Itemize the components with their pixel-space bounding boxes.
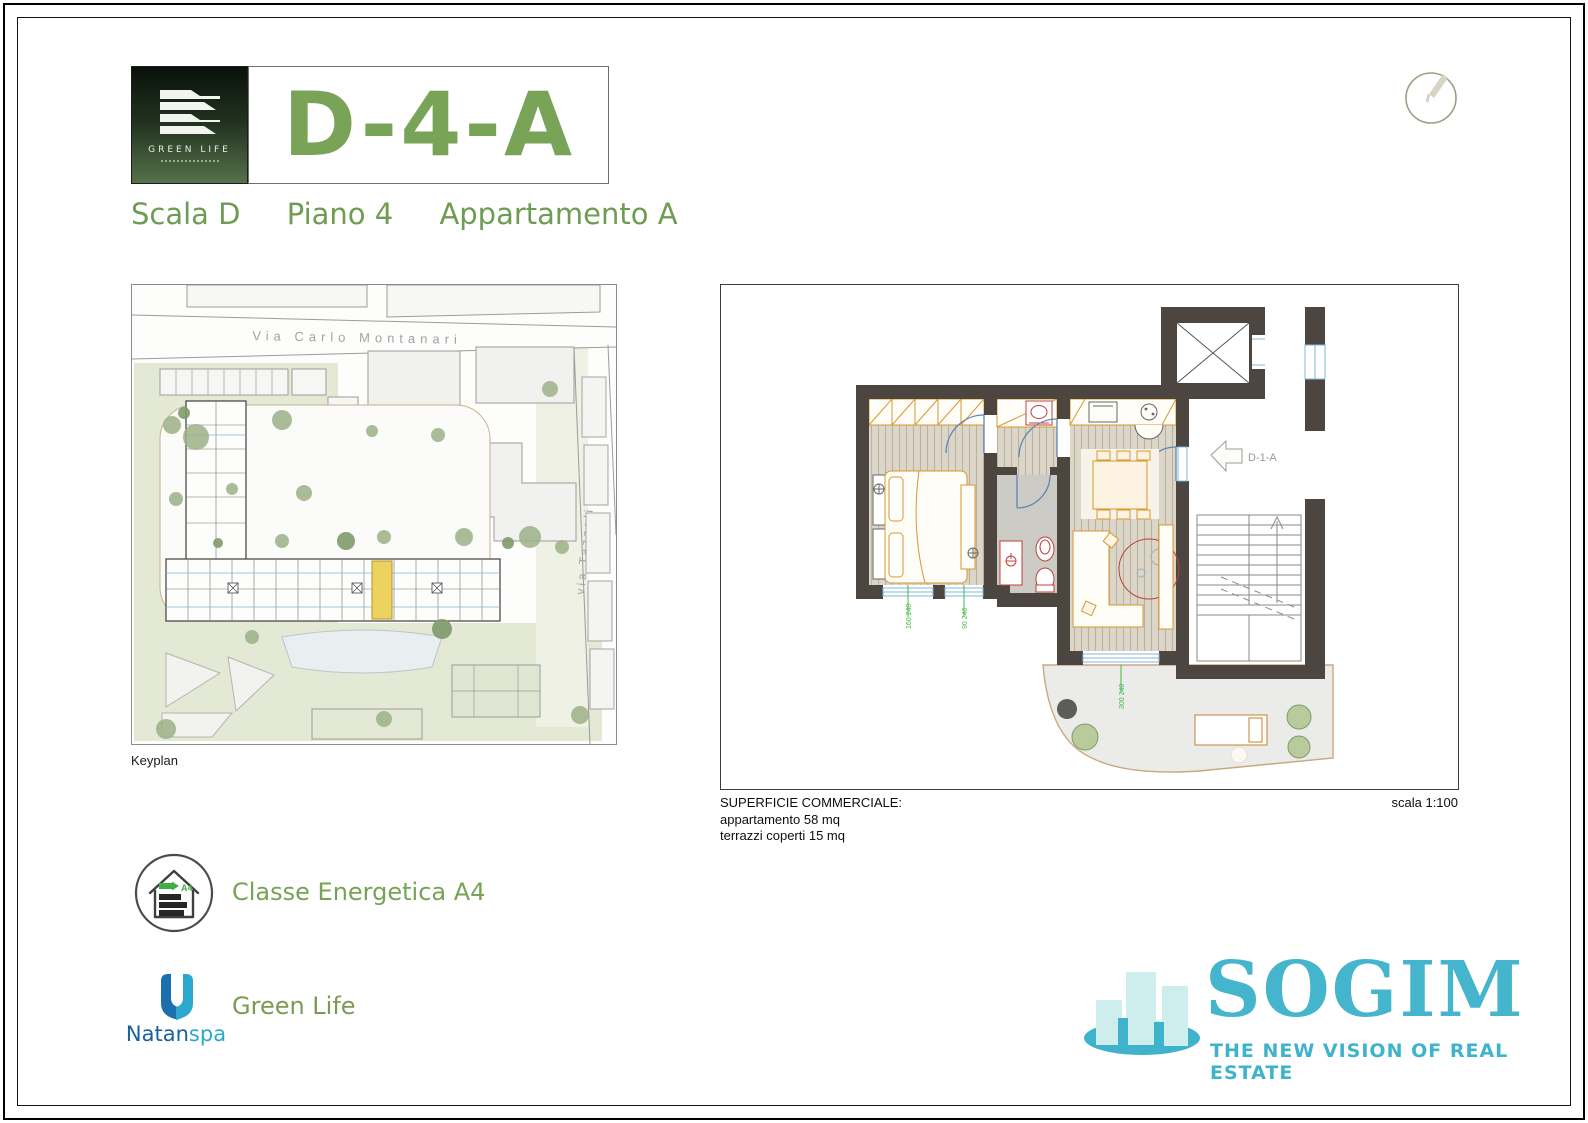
natan-name-part2: spa bbox=[189, 1022, 226, 1046]
terrace bbox=[1043, 665, 1333, 772]
unit-subtitle: Scala D Piano 4 Appartamento A bbox=[131, 197, 715, 231]
entry-marker: D-1-A bbox=[1211, 441, 1277, 471]
natan-name-part1: Natan bbox=[126, 1022, 189, 1046]
sogim-brand-name: SOGIM bbox=[1205, 952, 1525, 1029]
subtitle-scala: Scala D bbox=[131, 197, 241, 231]
terrace-table bbox=[1057, 699, 1077, 719]
terrace-lounge-chair bbox=[1195, 715, 1267, 745]
wardrobe bbox=[869, 399, 984, 425]
keyplan-map: Via Carlo Montanari via Tazzoli bbox=[132, 285, 616, 744]
subtitle-piano: Piano 4 bbox=[287, 197, 393, 231]
bed bbox=[873, 471, 967, 583]
terrace-plant bbox=[1288, 736, 1310, 758]
north-arrow-icon bbox=[1398, 66, 1464, 132]
terrace-plant bbox=[1287, 705, 1311, 729]
svg-text:90 240: 90 240 bbox=[962, 607, 969, 629]
terrace-plant bbox=[1072, 724, 1098, 750]
plan-sheet: GREEN LIFE D-4-A Scala D Piano 4 Apparta… bbox=[0, 0, 1588, 1123]
project-name: Green Life bbox=[232, 992, 356, 1020]
keyplan-highlighted-unit bbox=[372, 561, 392, 619]
floor-plan: D-1-A 160 240 90 240 300 240 bbox=[720, 284, 1459, 790]
tv-bench bbox=[1159, 525, 1173, 629]
svg-text:300 240: 300 240 bbox=[1119, 684, 1126, 709]
keyplan: Via Carlo Montanari via Tazzoli bbox=[131, 284, 617, 745]
unit-code-box: D-4-A bbox=[248, 66, 609, 184]
laundry-closet bbox=[997, 399, 1057, 427]
sogim-logo-icon bbox=[1080, 956, 1206, 1058]
svg-text:160 240: 160 240 bbox=[906, 604, 913, 629]
unit-code: D-4-A bbox=[283, 81, 575, 169]
floor-plan-drawing: D-1-A 160 240 90 240 300 240 bbox=[721, 285, 1458, 789]
surface-title: SUPERFICIE COMMERCIALE: bbox=[720, 795, 902, 812]
keyplan-label: Keyplan bbox=[131, 753, 178, 768]
surface-terraces: terrazzi coperti 15 mq bbox=[720, 828, 902, 845]
surface-apartment: appartamento 58 mq bbox=[720, 812, 902, 829]
terrace-pot bbox=[1231, 747, 1247, 763]
energy-class-label: Classe Energetica A4 bbox=[232, 878, 485, 906]
energy-badge: A4 bbox=[181, 883, 193, 893]
energy-class-icon: A4 bbox=[133, 852, 215, 934]
green-life-logo-bars-icon bbox=[155, 88, 225, 138]
natanspa-logo-icon bbox=[146, 970, 208, 1024]
green-life-logo-title: GREEN LIFE bbox=[148, 145, 231, 155]
surface-info: SUPERFICIE COMMERCIALE: appartamento 58 … bbox=[720, 795, 902, 845]
green-life-logo-tagline bbox=[161, 160, 219, 162]
green-life-logo: GREEN LIFE bbox=[131, 66, 248, 184]
scale-label: scala 1:100 bbox=[1340, 795, 1458, 810]
natanspa-logo-text: Natanspa bbox=[124, 1022, 228, 1046]
subtitle-appartamento: Appartamento A bbox=[439, 197, 677, 231]
sogim-tagline: THE NEW VISION OF REAL ESTATE bbox=[1210, 1040, 1588, 1084]
staircase bbox=[1197, 515, 1301, 661]
entry-label: D-1-A bbox=[1248, 452, 1277, 464]
entry-door-threshold bbox=[1178, 447, 1187, 481]
dining-set bbox=[1081, 449, 1159, 519]
